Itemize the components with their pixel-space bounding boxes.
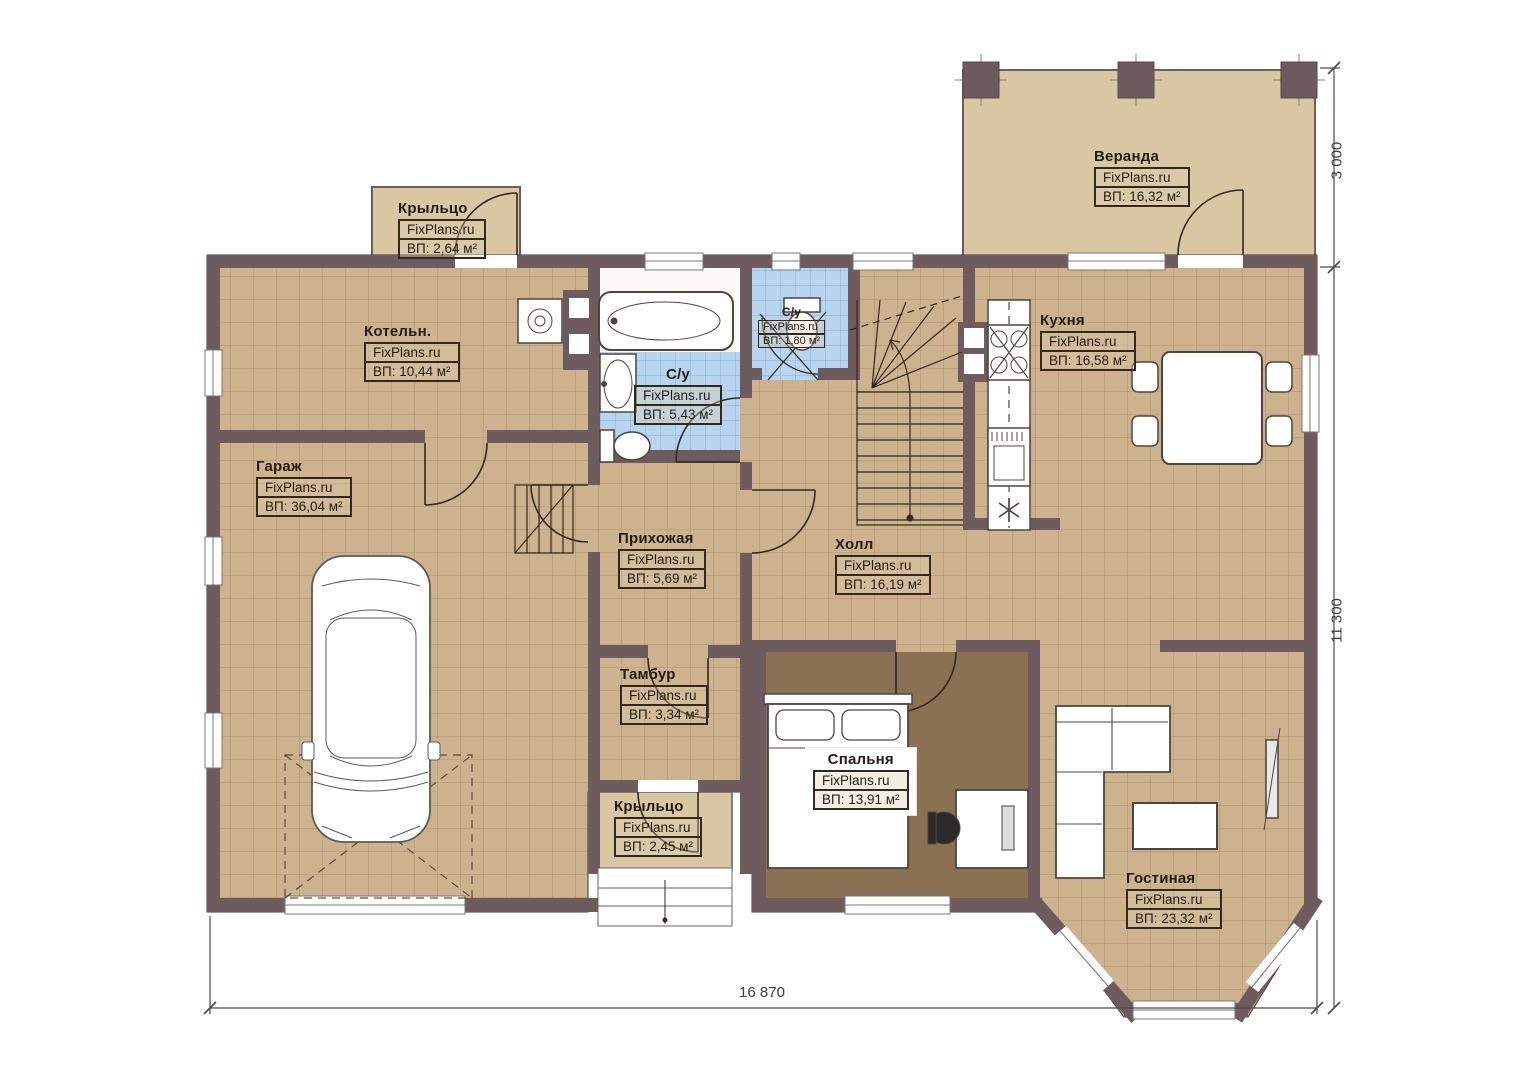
room-brand: FixPlans.ru [815, 772, 907, 791]
wall-hallway-vestibule-b [708, 645, 740, 658]
room-brand: FixPlans.ru [759, 321, 824, 335]
room-area: ВП: 16,32 м² [1096, 188, 1188, 205]
room-label-hall: Холл FixPlans.ru ВП: 16,19 м² [835, 536, 931, 595]
room-label-veranda: Веранда FixPlans.ru ВП: 16,32 м² [1094, 148, 1190, 207]
vent-flue [569, 334, 589, 354]
wall-column-right-a [740, 268, 752, 398]
wall-boiler-garage-a [207, 430, 425, 443]
wall-vestibule-porch-b [698, 780, 740, 792]
wall-column-right-c [740, 553, 752, 792]
chair [1132, 362, 1158, 392]
room-label-bedroom: Спальня FixPlans.ru ВП: 13,91 м² [806, 748, 916, 815]
room-area: ВП: 5,69 м² [620, 570, 704, 587]
room-name: Прихожая [618, 530, 694, 547]
wall-right [1304, 255, 1317, 907]
pillar [1281, 62, 1317, 98]
room-info-box: FixPlans.ru ВП: 3,34 м² [620, 685, 708, 725]
room-name: Крыльцо [614, 798, 684, 815]
room-label-garage: Гараж FixPlans.ru ВП: 36,04 м² [256, 458, 352, 517]
chair [1132, 416, 1158, 446]
room-name: Тамбур [620, 666, 676, 683]
room-label-wc: С/у FixPlans.ru ВП: 1,80 м² [758, 305, 825, 348]
room-info-box: FixPlans.ru ВП: 23,32 м² [1126, 889, 1222, 929]
room-area: ВП: 16,58 м² [1042, 352, 1134, 369]
bathtub [599, 292, 733, 350]
toilet-bowl [614, 432, 650, 460]
floor-plan-page: Веранда FixPlans.ru ВП: 16,32 м² Крыльцо… [0, 0, 1528, 1080]
room-brand: FixPlans.ru [1096, 169, 1188, 188]
wall-wc-bottom-b [818, 368, 860, 380]
room-brand: FixPlans.ru [837, 557, 929, 576]
room-label-bathroom: С/у FixPlans.ru ВП: 5,43 м² [634, 366, 722, 425]
room-area: ВП: 36,04 м² [258, 498, 350, 515]
room-name: Котельн. [364, 323, 431, 340]
room-area: ВП: 16,19 м² [837, 576, 929, 593]
room-area: ВП: 2,45 м² [616, 838, 700, 855]
room-name: Гостиная [1126, 870, 1195, 887]
room-area: ВП: 10,44 м² [366, 363, 458, 380]
bed-headboard [764, 694, 912, 704]
room-brand: FixPlans.ru [400, 221, 484, 240]
wall-wc-right [848, 268, 860, 380]
room-brand: FixPlans.ru [636, 387, 720, 406]
room-label-hallway: Прихожая FixPlans.ru ВП: 5,69 м² [618, 530, 706, 589]
wall-bedroom-living [1028, 640, 1040, 905]
room-info-box: FixPlans.ru ВП: 16,19 м² [835, 555, 931, 595]
room-info-box: FixPlans.ru ВП: 2,64 м² [398, 219, 486, 259]
room-name: Гараж [256, 458, 302, 475]
room-brand: FixPlans.ru [1042, 333, 1134, 352]
wall-bedroom-top-b [956, 640, 1040, 652]
room-info-box: FixPlans.ru ВП: 5,43 м² [634, 385, 722, 425]
room-brand: FixPlans.ru [366, 344, 458, 363]
dimension-width: 16 870 [702, 984, 822, 1001]
toilet-tank [600, 430, 614, 462]
wall-vestibule-porch-a [600, 780, 638, 792]
wall-column-left-b [588, 552, 600, 792]
porch-door-opening [638, 780, 698, 792]
porch-steps [598, 868, 732, 926]
dimension-veranda-depth: 3 000 [1329, 116, 1346, 206]
room-area: ВП: 23,32 м² [1128, 910, 1220, 927]
room-info-box: FixPlans.ru ВП: 5,69 м² [618, 549, 706, 589]
wall-stairs-kitchen [963, 268, 975, 530]
pillow [842, 710, 900, 740]
room-brand: FixPlans.ru [1128, 891, 1220, 910]
room-area: ВП: 1,80 м² [759, 335, 824, 347]
room-info-box: FixPlans.ru ВП: 16,58 м² [1040, 331, 1136, 371]
room-info-box: FixPlans.ru ВП: 1,80 м² [758, 320, 825, 348]
room-info-box: FixPlans.ru ВП: 2,45 м² [614, 817, 702, 857]
wall-boiler-garage-b [487, 430, 600, 443]
wall-hallway-vestibule-a [600, 645, 648, 658]
vent-flue [964, 328, 984, 348]
room-brand: FixPlans.ru [620, 551, 704, 570]
room-name: Спальня [828, 751, 894, 768]
wall-bedroom-left [752, 652, 766, 898]
room-area: ВП: 13,91 м² [815, 791, 907, 808]
room-label-porch-bottom: Крыльцо FixPlans.ru ВП: 2,45 м² [614, 798, 702, 857]
room-label-living: Гостиная FixPlans.ru ВП: 23,32 м² [1126, 870, 1222, 929]
wall-wc-bottom-a [752, 368, 762, 380]
wall-column-right-b [740, 462, 752, 490]
room-name: Крыльцо [398, 200, 468, 217]
desk [956, 790, 1028, 868]
porch-side-wall-right [740, 792, 752, 874]
office-chair-back [928, 812, 936, 844]
room-label-boiler: Котельн. FixPlans.ru ВП: 10,44 м² [364, 323, 460, 382]
room-area: ВП: 3,34 м² [622, 706, 706, 723]
room-brand: FixPlans.ru [258, 479, 350, 498]
vent-flue [964, 354, 984, 374]
car [302, 556, 440, 842]
dimension-depth: 11 300 [1329, 576, 1346, 666]
dining-table [1162, 352, 1262, 464]
room-name: Кухня [1040, 312, 1085, 329]
room-info-box: FixPlans.ru ВП: 16,32 м² [1094, 167, 1190, 207]
vent-flue [569, 298, 589, 318]
pillar [963, 62, 999, 98]
room-brand: FixPlans.ru [622, 687, 706, 706]
monitor [1002, 806, 1014, 850]
pillar [1118, 62, 1154, 98]
room-info-box: FixPlans.ru ВП: 13,91 м² [813, 770, 909, 810]
room-area: ВП: 2,64 м² [400, 240, 484, 257]
room-name: С/у [666, 366, 690, 383]
room-label-vestibule: Тамбур FixPlans.ru ВП: 3,34 м² [620, 666, 708, 725]
wall-bedroom-top-a [752, 640, 896, 652]
room-name: Холл [835, 536, 873, 553]
coffee-table [1133, 803, 1217, 849]
room-info-box: FixPlans.ru ВП: 36,04 м² [256, 477, 352, 517]
room-label-porch-top: Крыльцо FixPlans.ru ВП: 2,64 м² [398, 200, 486, 259]
chair [1266, 362, 1292, 392]
porch-side-wall-left [588, 792, 600, 874]
pillow [776, 710, 834, 740]
washing-machine [518, 299, 562, 343]
veranda-door-opening [1178, 255, 1243, 268]
floor-plan-drawing [0, 0, 1528, 1080]
room-name: С/у [782, 305, 801, 319]
room-area: ВП: 5,43 м² [636, 406, 720, 423]
room-label-kitchen: Кухня FixPlans.ru ВП: 16,58 м² [1040, 312, 1136, 371]
room-info-box: FixPlans.ru ВП: 10,44 м² [364, 342, 460, 382]
chair [1266, 416, 1292, 446]
wall-living-top [1160, 640, 1304, 652]
room-name: Веранда [1094, 148, 1159, 165]
room-brand: FixPlans.ru [616, 819, 700, 838]
